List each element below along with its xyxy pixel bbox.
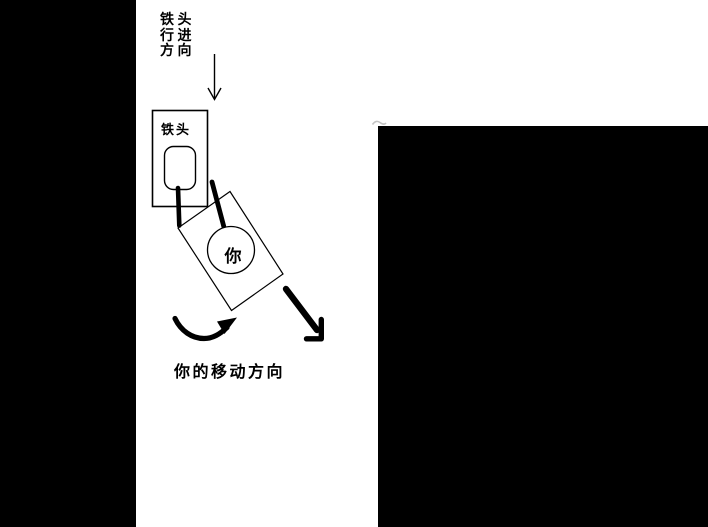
approach-direction-line: 铁头 xyxy=(160,13,195,29)
approach-direction-line: 方向 xyxy=(160,44,195,60)
diagram-strokes xyxy=(0,0,708,527)
hammer-box-label: 铁头 xyxy=(161,119,191,138)
player-label: 你 xyxy=(211,242,255,267)
approach-direction-label: 铁头 行进 方向 xyxy=(160,13,195,60)
movement-direction-label: 你的移动方向 xyxy=(174,358,285,382)
screenshot-root: 铁头 行进 方向 铁头 你 你的移动方向 xyxy=(0,0,708,527)
approach-direction-line: 行进 xyxy=(160,29,195,45)
movement-arrow-shaft xyxy=(286,289,317,330)
smudge-artifact xyxy=(373,121,387,124)
left-pin xyxy=(178,188,179,226)
hammer-slot-outline xyxy=(165,147,196,190)
